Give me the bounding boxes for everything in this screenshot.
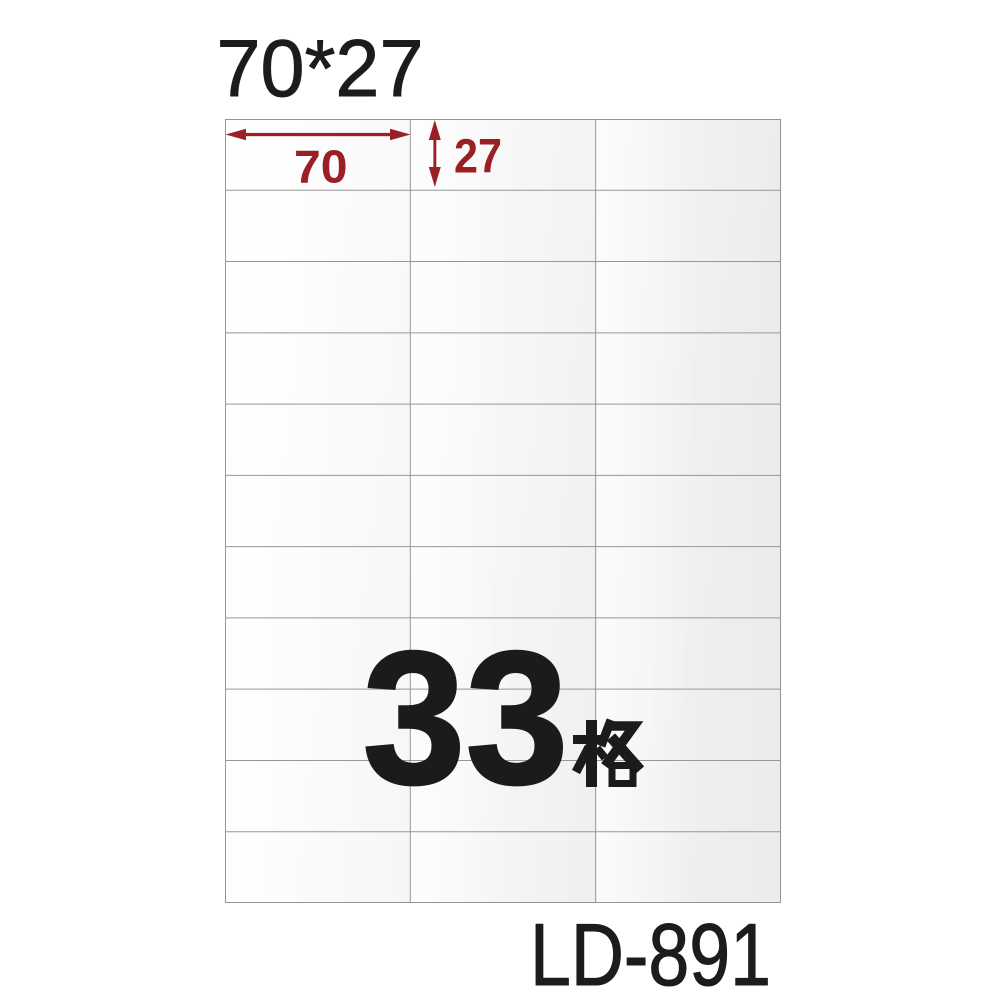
svg-text:70*27: 70*27 bbox=[217, 24, 424, 114]
svg-text:LD-891: LD-891 bbox=[530, 905, 771, 1000]
svg-text:27: 27 bbox=[454, 130, 502, 183]
svg-text:33: 33 bbox=[363, 613, 569, 824]
svg-text:70: 70 bbox=[294, 140, 348, 192]
